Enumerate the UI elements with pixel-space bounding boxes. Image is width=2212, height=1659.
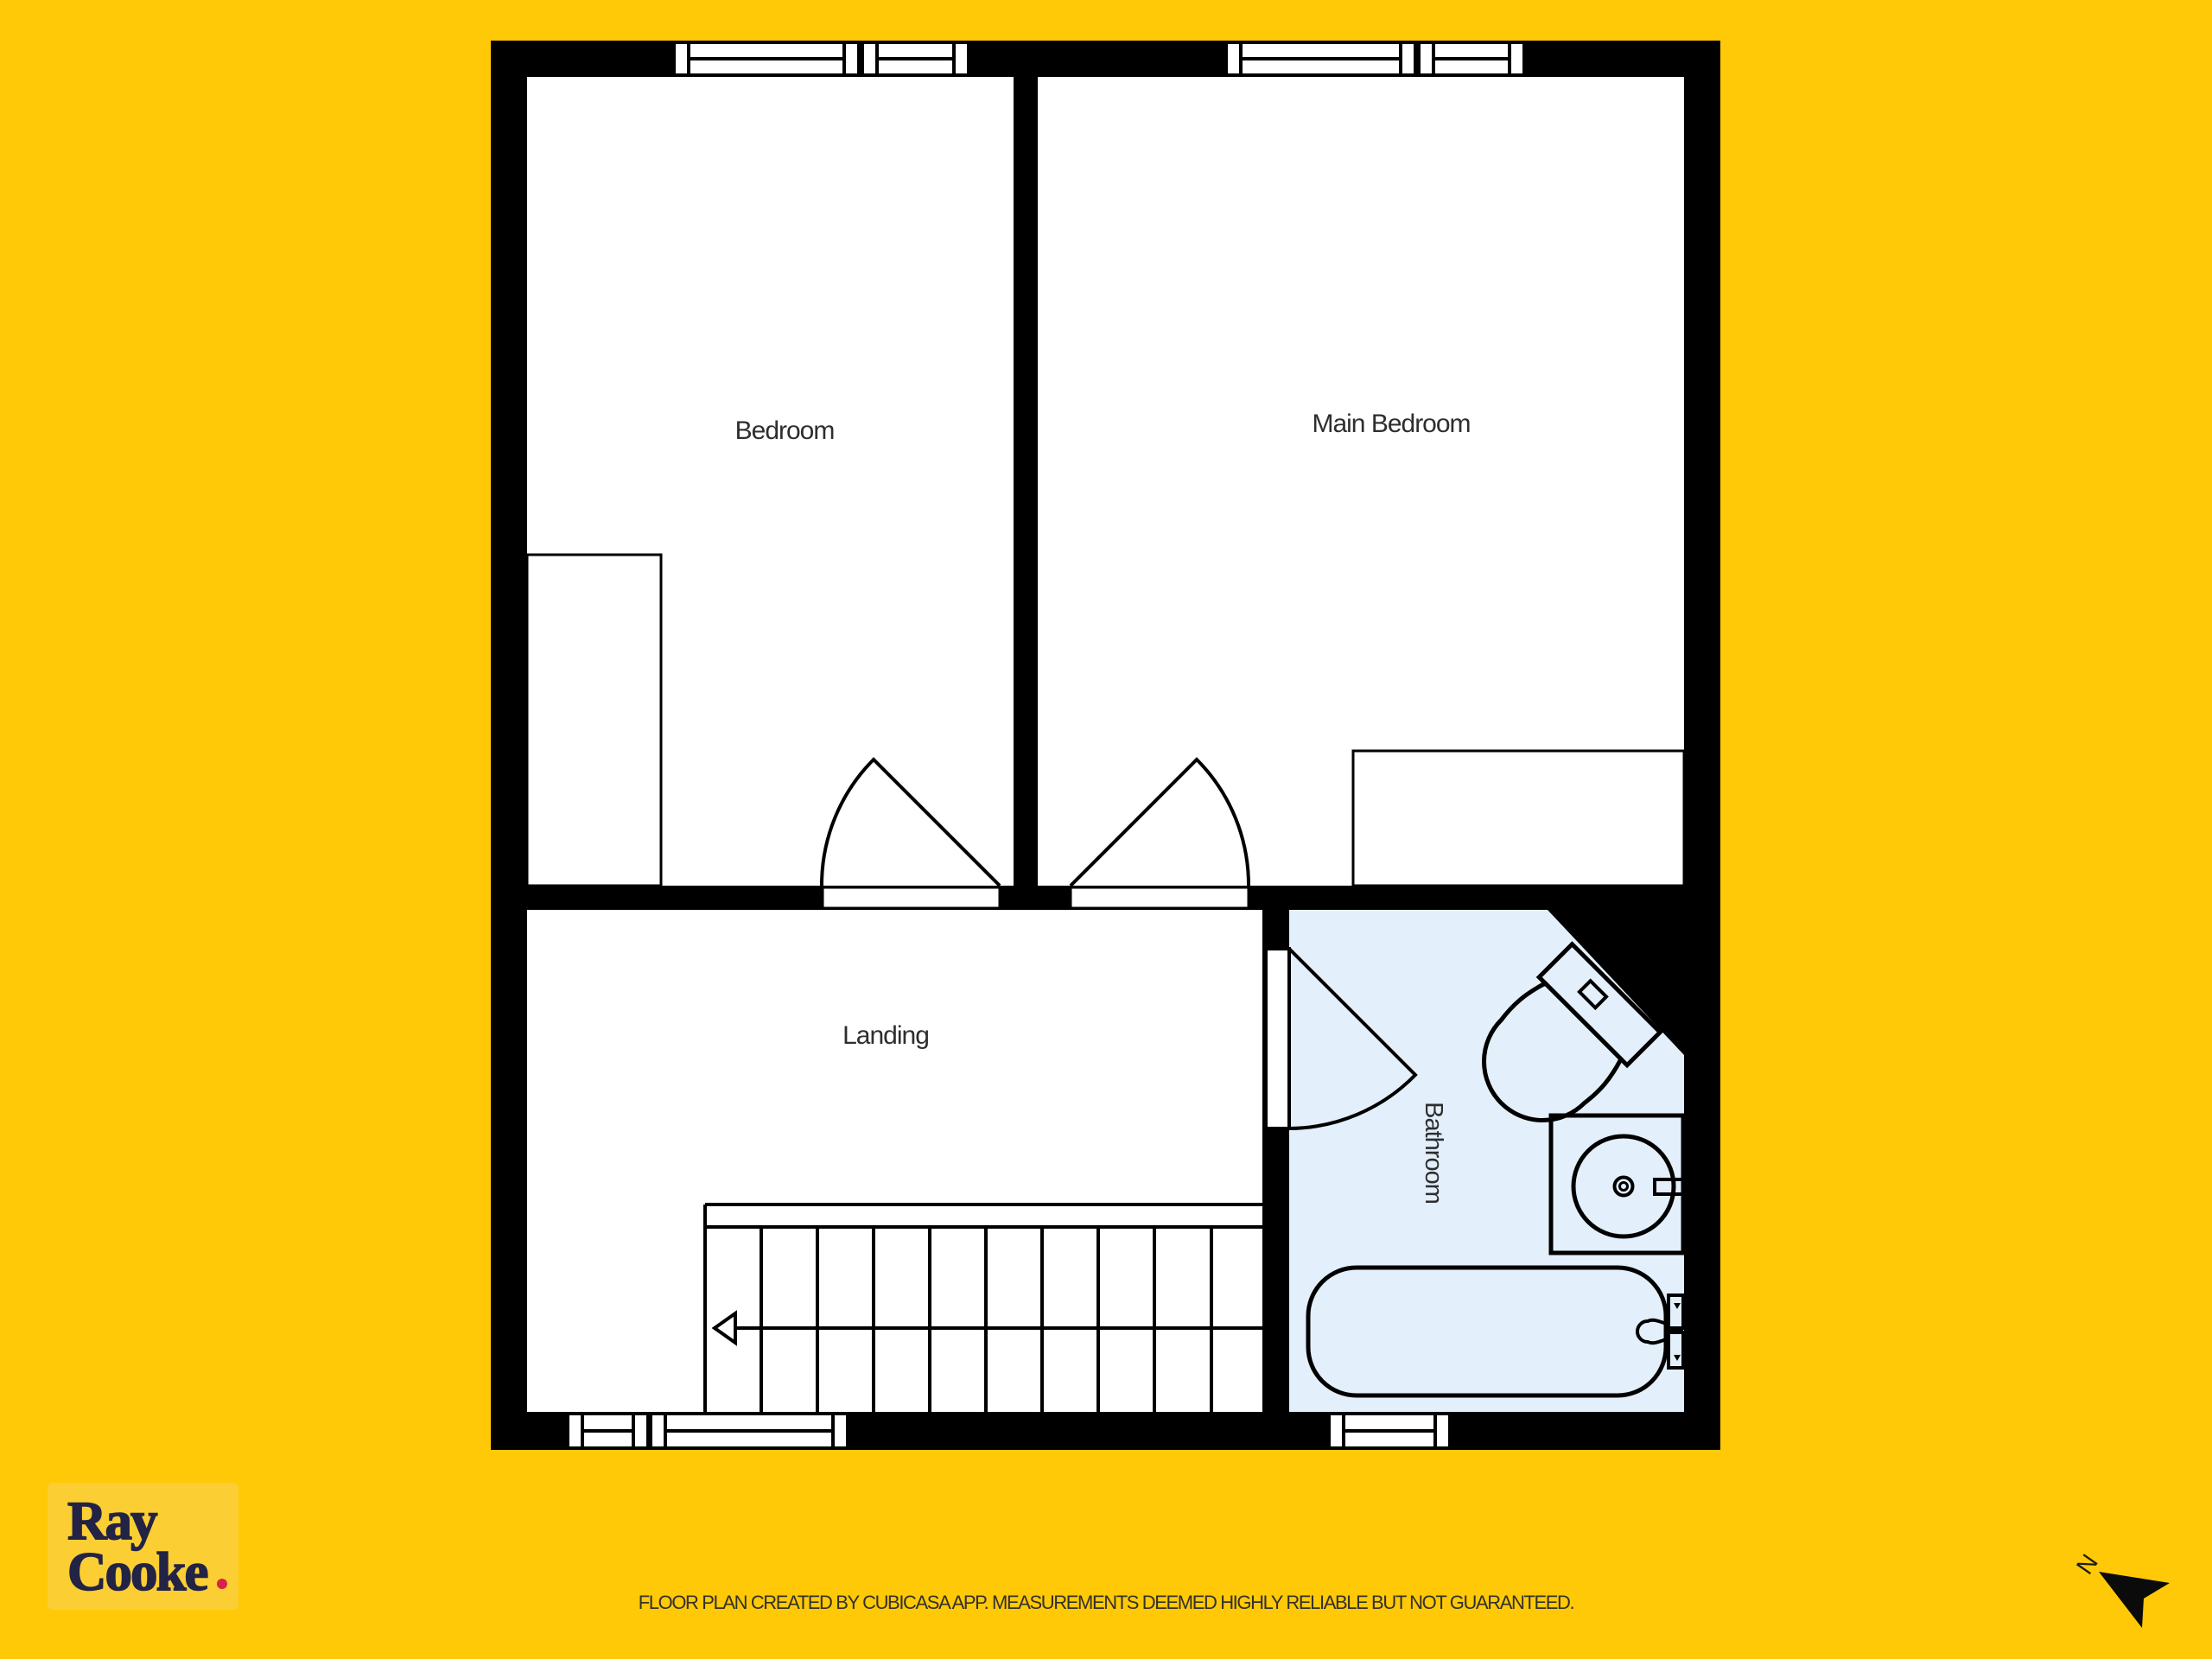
svg-text:Landing: Landing xyxy=(842,1021,929,1050)
svg-text:Bathroom: Bathroom xyxy=(1420,1102,1447,1204)
svg-text:Bedroom: Bedroom xyxy=(735,416,835,445)
svg-text:Main Bedroom: Main Bedroom xyxy=(1312,410,1470,438)
svg-text:Cooke: Cooke xyxy=(67,1541,208,1602)
svg-text:FLOOR PLAN CREATED BY CUBICASA: FLOOR PLAN CREATED BY CUBICASA APP. MEAS… xyxy=(639,1592,1574,1613)
